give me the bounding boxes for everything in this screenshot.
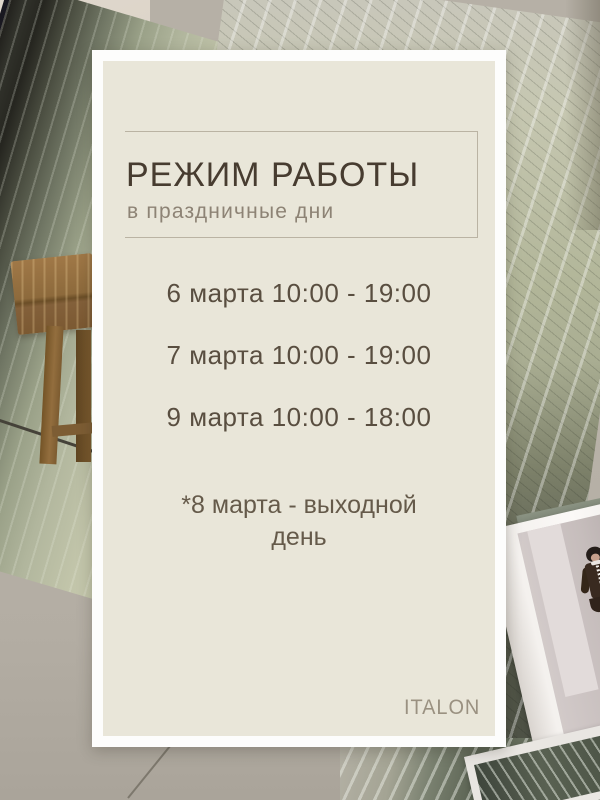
- poster-subtitle: в праздничные дни: [127, 200, 477, 224]
- schedule-row-march-9: 9 марта 10:00 - 18:00: [103, 402, 495, 433]
- holiday-hours-poster: РЕЖИМ РАБОТЫ в праздничные дни 6 марта 1…: [0, 0, 600, 800]
- wooden-stool-seat: [10, 253, 99, 335]
- poster-title: РЕЖИМ РАБОТЫ: [126, 156, 476, 195]
- notice-card: РЕЖИМ РАБОТЫ в праздничные дни 6 марта 1…: [103, 61, 495, 736]
- wooden-stool-back-leg: [76, 330, 91, 462]
- title-box: РЕЖИМ РАБОТЫ в праздничные дни: [125, 131, 478, 238]
- notice-card-frame: РЕЖИМ РАБОТЫ в праздничные дни 6 марта 1…: [92, 50, 506, 747]
- magazine-fashion-photo: [517, 508, 600, 742]
- holiday-note: *8 марта - выходной день: [169, 489, 429, 553]
- schedule-row-march-7: 7 марта 10:00 - 19:00: [103, 340, 495, 371]
- brand-logo: ITALON: [404, 696, 480, 720]
- marble-slab-edge-shadow: [565, 0, 600, 230]
- schedule-row-march-6: 6 марта 10:00 - 19:00: [103, 278, 495, 309]
